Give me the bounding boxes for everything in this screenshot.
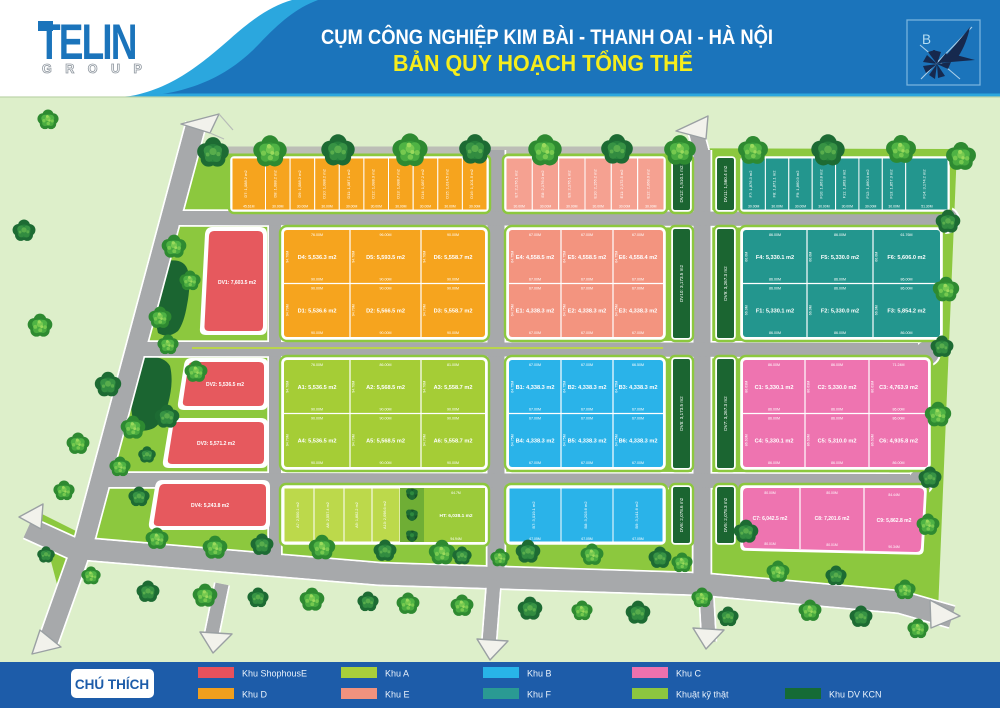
svg-text:30.00M: 30.00M	[593, 205, 604, 209]
svg-text:94.70M: 94.70M	[286, 251, 290, 263]
svg-text:F5: 5,330.0 m2: F5: 5,330.0 m2	[821, 255, 859, 261]
svg-text:DV11: 1,560.4 m2: DV11: 1,560.4 m2	[723, 165, 728, 202]
svg-text:E4: 4,558.5 m2: E4: 4,558.5 m2	[516, 255, 555, 261]
svg-text:66.0M: 66.0M	[809, 305, 813, 315]
svg-text:90.00M: 90.00M	[447, 233, 459, 237]
svg-text:94.94M: 94.94M	[450, 537, 461, 541]
svg-text:Khu ShophousE: Khu ShophousE	[242, 669, 307, 679]
svg-text:D6: 5,558.7 m2: D6: 5,558.7 m2	[434, 255, 473, 261]
svg-text:90.00M: 90.00M	[380, 417, 392, 421]
svg-text:E9: 2,176.1 m2: E9: 2,176.1 m2	[566, 170, 571, 198]
svg-text:F11: 1,863.8 m2: F11: 1,863.8 m2	[842, 169, 847, 199]
svg-text:Khu E: Khu E	[385, 690, 410, 700]
svg-text:D16: 1,101.5 m2: D16: 1,101.5 m2	[469, 168, 474, 198]
svg-text:GROUP: GROUP	[42, 62, 155, 76]
svg-text:94.70M: 94.70M	[423, 434, 427, 446]
svg-text:67.05M: 67.05M	[529, 537, 540, 541]
svg-text:86.63M: 86.63M	[745, 381, 749, 393]
svg-text:C2: 5,330.0 m2: C2: 5,330.0 m2	[818, 385, 857, 391]
svg-text:86.00M: 86.00M	[380, 363, 392, 367]
svg-text:67.00M: 67.00M	[632, 331, 644, 335]
svg-text:F4: 5,330.1 m2: F4: 5,330.1 m2	[756, 255, 794, 261]
svg-text:DV5: 2,078.3 m2: DV5: 2,078.3 m2	[723, 497, 728, 532]
svg-text:B3: 4,338.3 m2: B3: 4,338.3 m2	[619, 385, 658, 391]
svg-text:30.00M: 30.00M	[865, 205, 876, 209]
svg-text:B8: 3,203.6 m2: B8: 3,203.6 m2	[583, 501, 588, 529]
svg-text:DV12: 1,510.1 m2: DV12: 1,510.1 m2	[679, 165, 684, 202]
svg-text:F12: 1,860.4 m2: F12: 1,860.4 m2	[865, 169, 870, 199]
svg-text:30.00M: 30.00M	[420, 205, 431, 209]
svg-text:Khu D: Khu D	[242, 690, 268, 700]
svg-text:67.00M: 67.00M	[632, 408, 644, 412]
svg-text:A7: 2,500.1 m2: A7: 2,500.1 m2	[296, 502, 300, 528]
svg-text:86.00M: 86.00M	[831, 408, 843, 412]
svg-text:86.00M: 86.00M	[768, 363, 780, 367]
svg-text:D1: 5,536.6 m2: D1: 5,536.6 m2	[298, 308, 337, 314]
svg-text:E2: 4,338.3 m2: E2: 4,338.3 m2	[568, 308, 607, 314]
svg-text:C7: 6,042.5 m2: C7: 6,042.5 m2	[753, 516, 788, 522]
svg-text:90.00M: 90.00M	[447, 417, 459, 421]
svg-text:DV7: 3,267.3 m2: DV7: 3,267.3 m2	[723, 396, 728, 431]
svg-text:A9: 1,862.2 m2: A9: 1,862.2 m2	[355, 502, 359, 528]
svg-text:94.70M: 94.70M	[352, 251, 356, 263]
svg-text:30.00M: 30.00M	[795, 205, 806, 209]
svg-text:A8: 2,557.4 m2: A8: 2,557.4 m2	[326, 502, 330, 528]
svg-text:64.75M: 64.75M	[615, 434, 619, 446]
svg-text:30.00M: 30.00M	[771, 205, 782, 209]
svg-text:30.00M: 30.00M	[297, 205, 308, 209]
svg-text:86.00M: 86.00M	[893, 408, 905, 412]
svg-text:Khu C: Khu C	[676, 669, 702, 679]
svg-text:86.00M: 86.00M	[769, 278, 781, 282]
svg-text:67.00M: 67.00M	[581, 278, 593, 282]
svg-text:96.00M: 96.00M	[380, 233, 392, 237]
svg-text:30.00M: 30.00M	[321, 205, 332, 209]
svg-text:66.0M: 66.0M	[875, 305, 879, 315]
svg-text:67.05M: 67.05M	[632, 537, 643, 541]
svg-text:67.00M: 67.00M	[529, 461, 541, 465]
svg-text:64.75M: 64.75M	[511, 381, 515, 393]
svg-text:E6: 4,558.4 m2: E6: 4,558.4 m2	[619, 255, 658, 261]
svg-text:A10: 2,098.6 m2: A10: 2,098.6 m2	[383, 501, 387, 529]
svg-text:67.00M: 67.00M	[581, 233, 593, 237]
svg-text:67.00M: 67.00M	[529, 417, 541, 421]
svg-text:80.01M: 80.01M	[764, 542, 775, 546]
svg-text:67.00M: 67.00M	[632, 287, 644, 291]
svg-text:C3: 4,763.9 m2: C3: 4,763.9 m2	[879, 385, 918, 391]
svg-text:D5: 5,593.5 m2: D5: 5,593.5 m2	[366, 255, 405, 261]
svg-text:A2: 5,568.5 m2: A2: 5,568.5 m2	[366, 385, 405, 391]
svg-text:30.00M: 30.00M	[566, 205, 577, 209]
svg-text:D7: 1,088.2 m2: D7: 1,088.2 m2	[243, 170, 248, 198]
svg-text:A5: 5,568.5 m2: A5: 5,568.5 m2	[366, 438, 405, 444]
svg-text:E11: 2,172.5 m2: E11: 2,172.5 m2	[619, 169, 624, 199]
svg-text:E12: 2,068.0 m2: E12: 2,068.0 m2	[645, 169, 650, 199]
svg-text:94.70M: 94.70M	[286, 304, 290, 316]
svg-text:30.00M: 30.00M	[818, 205, 829, 209]
svg-text:F13: 1,857.3 m2: F13: 1,857.3 m2	[889, 169, 894, 199]
svg-text:Khu DV KCN: Khu DV KCN	[829, 690, 882, 700]
svg-text:C9: 5,862.8 m2: C9: 5,862.8 m2	[877, 518, 912, 524]
svg-text:F3: 5,854.2 m2: F3: 5,854.2 m2	[887, 308, 925, 314]
svg-text:94.70M: 94.70M	[423, 251, 427, 263]
svg-text:D8: 1,088.2 m2: D8: 1,088.2 m2	[272, 170, 277, 198]
svg-text:86.63M: 86.63M	[745, 434, 749, 446]
svg-text:61.76M: 61.76M	[901, 233, 913, 237]
svg-text:A6: 5,558.7 m2: A6: 5,558.7 m2	[434, 438, 473, 444]
svg-text:Khu B: Khu B	[527, 669, 552, 679]
svg-text:D4: 5,536.3 m2: D4: 5,536.3 m2	[298, 255, 337, 261]
svg-text:67.05M: 67.05M	[581, 537, 592, 541]
svg-text:E5: 4,558.5 m2: E5: 4,558.5 m2	[568, 255, 607, 261]
svg-text:B6: 4,338.3 m2: B6: 4,338.3 m2	[619, 438, 658, 444]
svg-text:B7: 3,019.1 m2: B7: 3,019.1 m2	[531, 501, 536, 529]
svg-text:86.00M: 86.00M	[834, 331, 846, 335]
svg-text:67.00M: 67.00M	[529, 331, 541, 335]
svg-text:64.75M: 64.75M	[563, 304, 567, 316]
svg-text:94.70M: 94.70M	[286, 434, 290, 446]
svg-text:67.00M: 67.00M	[581, 417, 593, 421]
svg-text:30.00M: 30.00M	[395, 205, 406, 209]
svg-text:90.00M: 90.00M	[380, 331, 392, 335]
svg-text:F14: 3,174.2 m2: F14: 3,174.2 m2	[921, 169, 926, 199]
svg-text:86.00M: 86.00M	[831, 363, 843, 367]
svg-text:67.00M: 67.00M	[632, 417, 644, 421]
svg-text:94.70M: 94.70M	[286, 381, 290, 393]
svg-text:94.70M: 94.70M	[352, 434, 356, 446]
svg-text:F6: 5,606.0 m2: F6: 5,606.0 m2	[887, 255, 925, 261]
svg-text:64.75M: 64.75M	[511, 251, 515, 263]
svg-text:90.00M: 90.00M	[380, 408, 392, 412]
svg-text:DV3: 5,571.2 m2: DV3: 5,571.2 m2	[197, 441, 235, 447]
svg-text:DV2: 5,536.5 m2: DV2: 5,536.5 m2	[206, 382, 244, 388]
svg-text:D2: 5,566.5 m2: D2: 5,566.5 m2	[366, 308, 405, 314]
svg-text:86.00M: 86.00M	[834, 278, 846, 282]
svg-text:Khu A: Khu A	[385, 669, 409, 679]
svg-text:86.63M: 86.63M	[871, 381, 875, 393]
svg-text:E8: 2,176.0 m2: E8: 2,176.0 m2	[540, 170, 545, 198]
svg-text:D14: 1,087.2 m2: D14: 1,087.2 m2	[420, 168, 425, 198]
svg-text:DV4: 5,243.8 m2: DV4: 5,243.8 m2	[191, 503, 229, 509]
svg-text:67.00M: 67.00M	[632, 461, 644, 465]
svg-text:86.00M: 86.00M	[893, 461, 905, 465]
svg-text:HT: 6,038.1 m2: HT: 6,038.1 m2	[439, 513, 472, 519]
svg-text:64.75M: 64.75M	[563, 381, 567, 393]
svg-text:90.00M: 90.00M	[447, 278, 459, 282]
svg-text:90.00M: 90.00M	[447, 287, 459, 291]
svg-text:30.00M: 30.00M	[645, 205, 656, 209]
svg-text:30.00M: 30.00M	[444, 205, 455, 209]
svg-text:F10: 1,863.8 m2: F10: 1,863.8 m2	[818, 169, 823, 199]
svg-text:94.70M: 94.70M	[423, 304, 427, 316]
svg-text:86.00M: 86.00M	[834, 287, 846, 291]
svg-text:CHÚ THÍCH: CHÚ THÍCH	[75, 677, 149, 692]
svg-text:67.00M: 67.00M	[529, 408, 541, 412]
svg-text:66.0M: 66.0M	[875, 252, 879, 262]
svg-text:B4: 4,338.3 m2: B4: 4,338.3 m2	[516, 438, 555, 444]
svg-text:94.70M: 94.70M	[352, 304, 356, 316]
svg-text:Khu F: Khu F	[527, 690, 552, 700]
svg-text:B: B	[922, 32, 931, 47]
svg-text:67.00M: 67.00M	[581, 331, 593, 335]
svg-text:64.75M: 64.75M	[563, 434, 567, 446]
svg-text:76.00M: 76.00M	[311, 363, 323, 367]
svg-text:D15: 1,014.5 m2: D15: 1,014.5 m2	[445, 168, 450, 198]
svg-text:80.00M: 80.00M	[826, 491, 837, 495]
svg-text:64.75M: 64.75M	[615, 251, 619, 263]
svg-text:90.00M: 90.00M	[311, 331, 323, 335]
svg-text:E3: 4,338.3 m2: E3: 4,338.3 m2	[619, 308, 658, 314]
svg-text:D13: 1,088.7 m2: D13: 1,088.7 m2	[395, 168, 400, 198]
svg-text:Khuật kỹ thật: Khuật kỹ thật	[676, 690, 729, 700]
svg-text:86.63M: 86.63M	[807, 434, 811, 446]
svg-text:D10: 1,088.2 m2: D10: 1,088.2 m2	[322, 168, 327, 198]
svg-text:D3: 5,558.7 m2: D3: 5,558.7 m2	[434, 308, 473, 314]
svg-text:90.00M: 90.00M	[447, 331, 459, 335]
svg-text:64.75M: 64.75M	[563, 251, 567, 263]
svg-text:67.00M: 67.00M	[632, 278, 644, 282]
svg-text:86.00M: 86.00M	[768, 408, 780, 412]
svg-text:90.00M: 90.00M	[447, 408, 459, 412]
svg-text:A4: 5,536.5 m2: A4: 5,536.5 m2	[298, 438, 337, 444]
svg-text:C8: 7,201.6 m2: C8: 7,201.6 m2	[815, 516, 850, 522]
svg-text:45.61M: 45.61M	[243, 205, 254, 209]
svg-text:E10: 2,156.2 m2: E10: 2,156.2 m2	[593, 169, 598, 199]
svg-text:64.75M: 64.75M	[615, 304, 619, 316]
svg-text:67.00M: 67.00M	[581, 363, 593, 367]
svg-text:86.00M: 86.00M	[769, 233, 781, 237]
svg-text:66.50M: 66.50M	[632, 363, 644, 367]
svg-text:30.00M: 30.00M	[888, 205, 899, 209]
svg-text:94.70M: 94.70M	[352, 381, 356, 393]
svg-text:B1: 4,338.3 m2: B1: 4,338.3 m2	[516, 385, 555, 391]
svg-text:B2: 4,338.3 m2: B2: 4,338.3 m2	[568, 385, 607, 391]
svg-text:67.00M: 67.00M	[581, 408, 593, 412]
svg-text:90.00M: 90.00M	[380, 287, 392, 291]
svg-text:81.00M: 81.00M	[447, 363, 459, 367]
svg-text:E7: 2,176.1 m2: E7: 2,176.1 m2	[514, 170, 519, 198]
svg-text:30.00M: 30.00M	[371, 205, 382, 209]
svg-text:D12: 1,088.3 m2: D12: 1,088.3 m2	[371, 168, 376, 198]
svg-text:30.00M: 30.00M	[514, 205, 525, 209]
svg-text:76.00M: 76.00M	[311, 233, 323, 237]
svg-text:C1: 5,330.1 m2: C1: 5,330.1 m2	[755, 385, 794, 391]
svg-text:86.00M: 86.00M	[901, 331, 913, 335]
svg-text:86.00M: 86.00M	[768, 417, 780, 421]
svg-text:90.00M: 90.00M	[311, 408, 323, 412]
svg-text:67.00M: 67.00M	[581, 287, 593, 291]
svg-text:86.00M: 86.00M	[831, 417, 843, 421]
svg-text:67.00M: 67.00M	[581, 461, 593, 465]
svg-text:30.00M: 30.00M	[346, 205, 357, 209]
svg-text:86.63M: 86.63M	[807, 381, 811, 393]
svg-text:B5: 4,338.3 m2: B5: 4,338.3 m2	[568, 438, 607, 444]
svg-text:A3: 5,558.7 m2: A3: 5,558.7 m2	[434, 385, 473, 391]
svg-text:64.75M: 64.75M	[511, 434, 515, 446]
svg-text:86.00M: 86.00M	[834, 233, 846, 237]
svg-text:F8: 1,871.1 m2: F8: 1,871.1 m2	[772, 170, 777, 198]
svg-text:90.00M: 90.00M	[311, 287, 323, 291]
svg-text:94.70M: 94.70M	[423, 381, 427, 393]
svg-text:A1: 5,536.5 m2: A1: 5,536.5 m2	[298, 385, 337, 391]
svg-text:90.00M: 90.00M	[311, 417, 323, 421]
svg-text:F2: 5,330.0 m2: F2: 5,330.0 m2	[821, 308, 859, 314]
svg-text:64.75M: 64.75M	[511, 304, 515, 316]
svg-text:86.00M: 86.00M	[901, 278, 913, 282]
svg-text:86.00M: 86.00M	[893, 417, 905, 421]
svg-text:F1: 5,330.1 m2: F1: 5,330.1 m2	[756, 308, 794, 314]
svg-text:DV9: 3,267.3 m2: DV9: 3,267.3 m2	[723, 266, 728, 301]
svg-text:D9: 1,088.2 m2: D9: 1,088.2 m2	[297, 170, 302, 198]
svg-text:DV1: 7,603.5 m2: DV1: 7,603.5 m2	[218, 280, 256, 286]
svg-text:30.00M: 30.00M	[842, 205, 853, 209]
svg-text:86.63M: 86.63M	[871, 434, 875, 446]
svg-text:80.00M: 80.00M	[764, 491, 775, 495]
svg-text:66.0M: 66.0M	[809, 252, 813, 262]
svg-text:F9: 1,860.9 m2: F9: 1,860.9 m2	[795, 170, 800, 198]
svg-text:90.00M: 90.00M	[380, 461, 392, 465]
svg-text:66.0M: 66.0M	[745, 305, 749, 315]
svg-text:86.00M: 86.00M	[901, 287, 913, 291]
svg-text:90.00M: 90.00M	[447, 461, 459, 465]
svg-text:67.00M: 67.00M	[529, 278, 541, 282]
svg-text:64.75M: 64.75M	[615, 381, 619, 393]
svg-text:84.44M: 84.44M	[888, 493, 899, 497]
svg-text:C5: 5,310.0 m2: C5: 5,310.0 m2	[818, 438, 857, 444]
svg-text:30.00M: 30.00M	[469, 205, 480, 209]
svg-text:86.00M: 86.00M	[769, 287, 781, 291]
svg-text:DV10: 3,173.5 m2: DV10: 3,173.5 m2	[679, 265, 684, 302]
svg-text:DV8: 3,173.5 m2: DV8: 3,173.5 m2	[679, 396, 684, 431]
svg-text:67.00M: 67.00M	[632, 233, 644, 237]
svg-text:BẢN QUY HOẠCH TỔNG THỂ: BẢN QUY HOẠCH TỔNG THỂ	[393, 48, 693, 76]
svg-text:86.00M: 86.00M	[831, 461, 843, 465]
svg-text:C4: 5,330.1 m2: C4: 5,330.1 m2	[755, 438, 794, 444]
svg-text:CỤM CÔNG NGHIỆP KIM BÀI - THA: CỤM CÔNG NGHIỆP KIM BÀI - THANH OAI - HÀ…	[321, 24, 773, 49]
svg-text:86.00M: 86.00M	[768, 461, 780, 465]
svg-text:C6: 4,935.8 m2: C6: 4,935.8 m2	[879, 438, 918, 444]
svg-text:90.00M: 90.00M	[380, 278, 392, 282]
svg-text:67.00M: 67.00M	[529, 363, 541, 367]
svg-text:71.24M: 71.24M	[893, 363, 905, 367]
svg-text:67.00M: 67.00M	[529, 233, 541, 237]
svg-text:64.7M: 64.7M	[451, 491, 461, 495]
svg-text:90.00M: 90.00M	[311, 461, 323, 465]
svg-text:DV6: 2,078.6 m2: DV6: 2,078.6 m2	[679, 497, 684, 532]
svg-text:30.00M: 30.00M	[748, 205, 759, 209]
svg-text:B9: 3,141.6 m2: B9: 3,141.6 m2	[634, 501, 639, 529]
svg-text:67.00M: 67.00M	[529, 287, 541, 291]
svg-text:F7: 1,876.3 m2: F7: 1,876.3 m2	[748, 170, 753, 198]
svg-text:30.00M: 30.00M	[619, 205, 630, 209]
svg-text:51.30M: 51.30M	[921, 205, 932, 209]
svg-text:30.00M: 30.00M	[540, 205, 551, 209]
svg-text:80.01M: 80.01M	[826, 543, 837, 547]
svg-text:30.00M: 30.00M	[272, 205, 283, 209]
svg-text:86.00M: 86.00M	[769, 331, 781, 335]
svg-text:D11: 1,087.1 m2: D11: 1,087.1 m2	[346, 169, 351, 199]
svg-text:90.34M: 90.34M	[888, 545, 899, 549]
svg-text:E1: 4,338.3 m2: E1: 4,338.3 m2	[516, 308, 555, 314]
svg-text:66.0M: 66.0M	[745, 252, 749, 262]
svg-text:90.00M: 90.00M	[311, 278, 323, 282]
